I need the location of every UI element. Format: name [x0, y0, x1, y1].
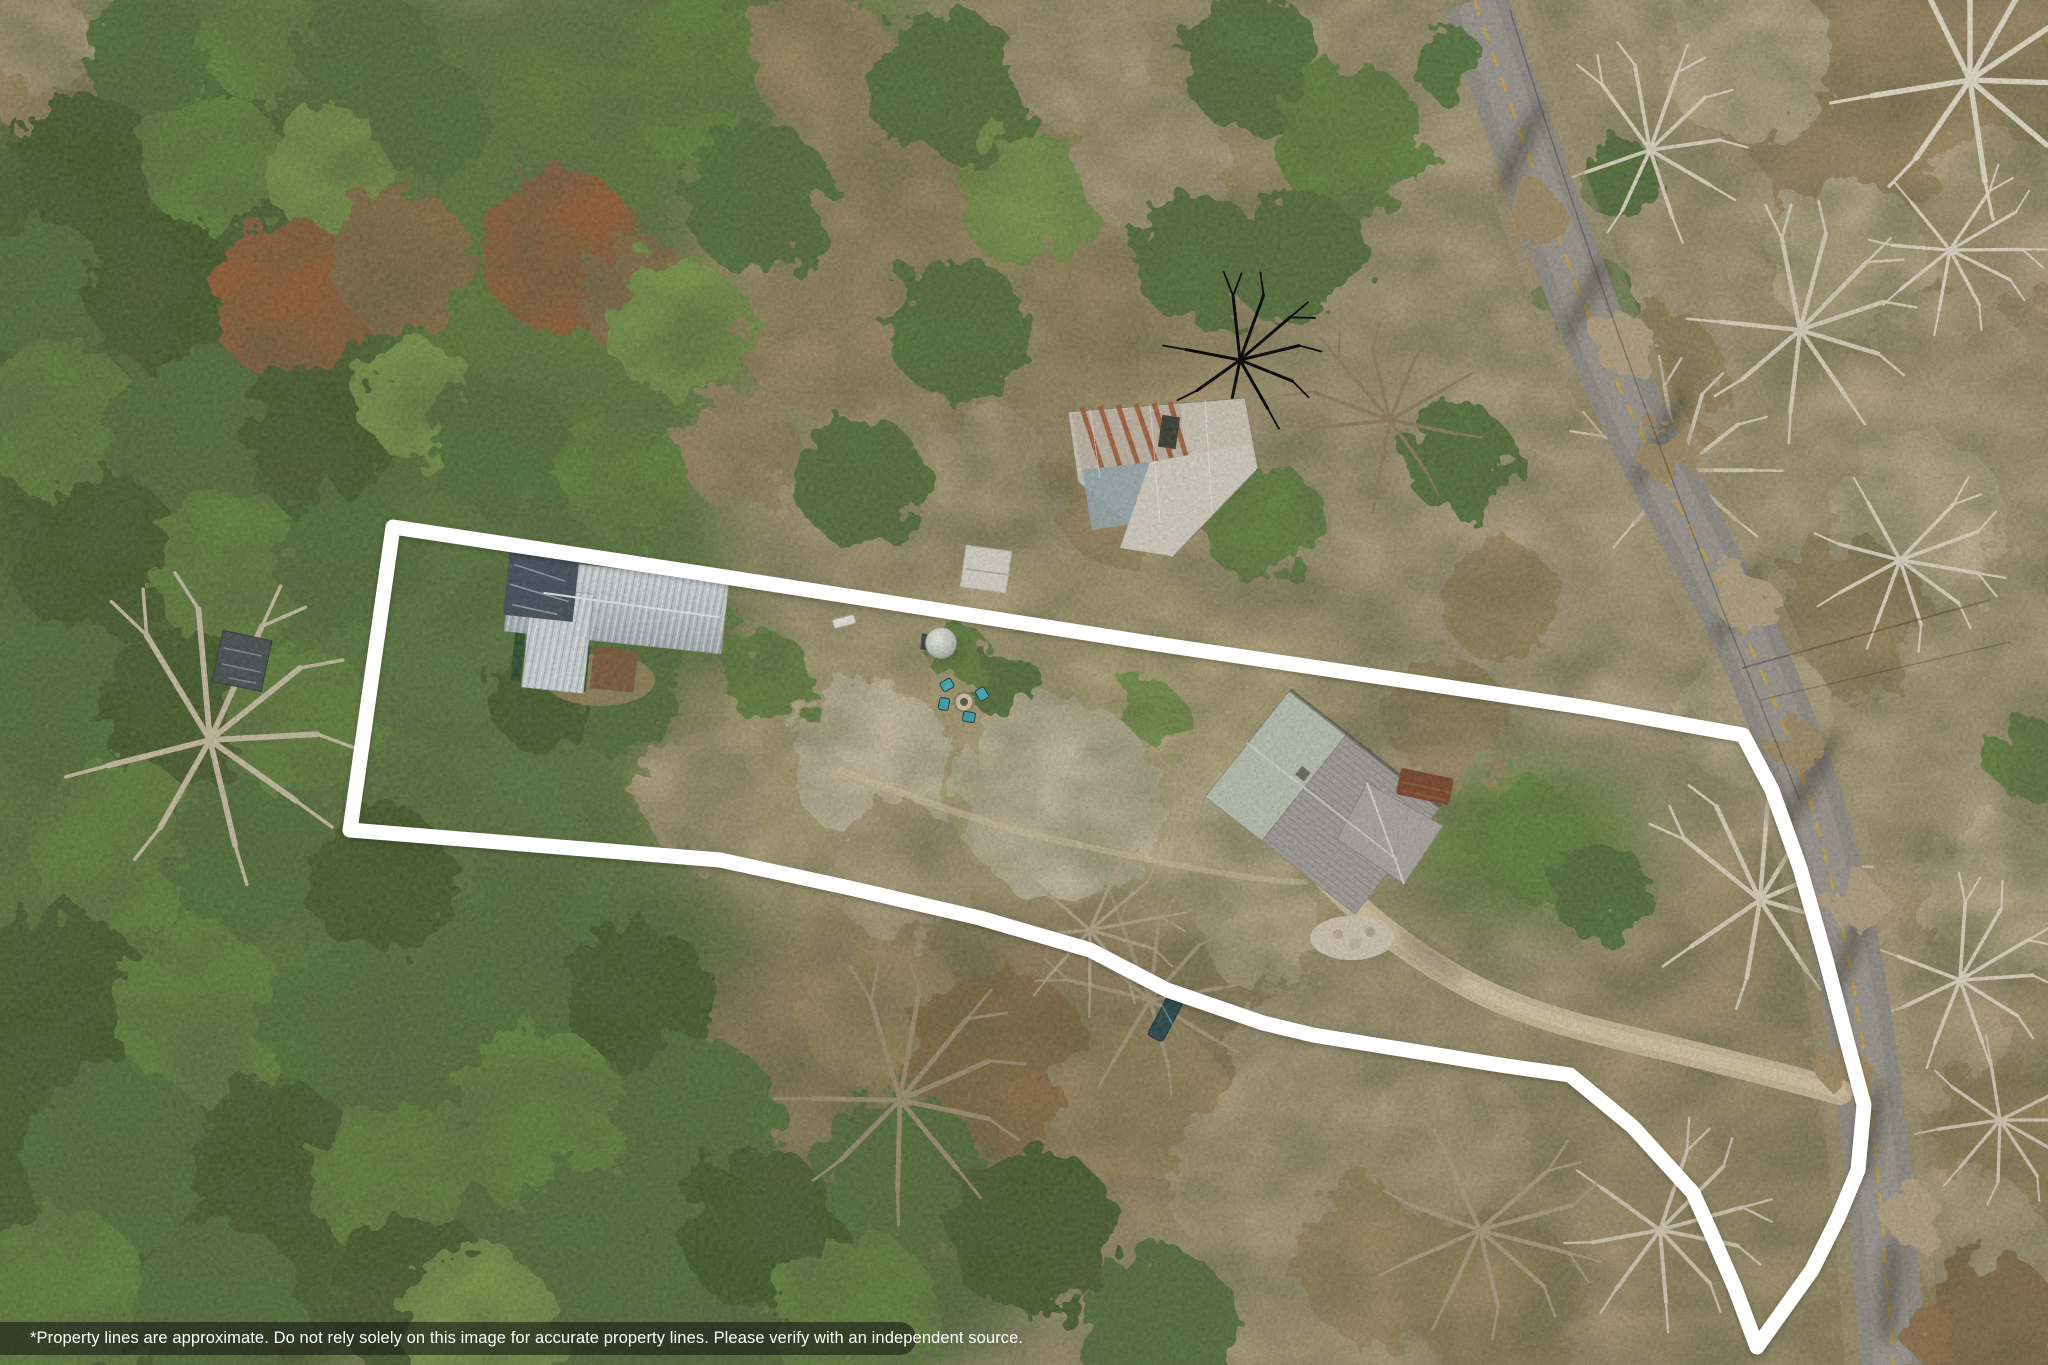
- aerial-photo-canvas: [0, 0, 2048, 1365]
- aerial-photo: *Property lines are approximate. Do not …: [0, 0, 2048, 1365]
- photo-grain-light: [0, 0, 2048, 1365]
- disclaimer-bar: *Property lines are approximate. Do not …: [0, 1322, 916, 1355]
- disclaimer-text: *Property lines are approximate. Do not …: [30, 1329, 1023, 1347]
